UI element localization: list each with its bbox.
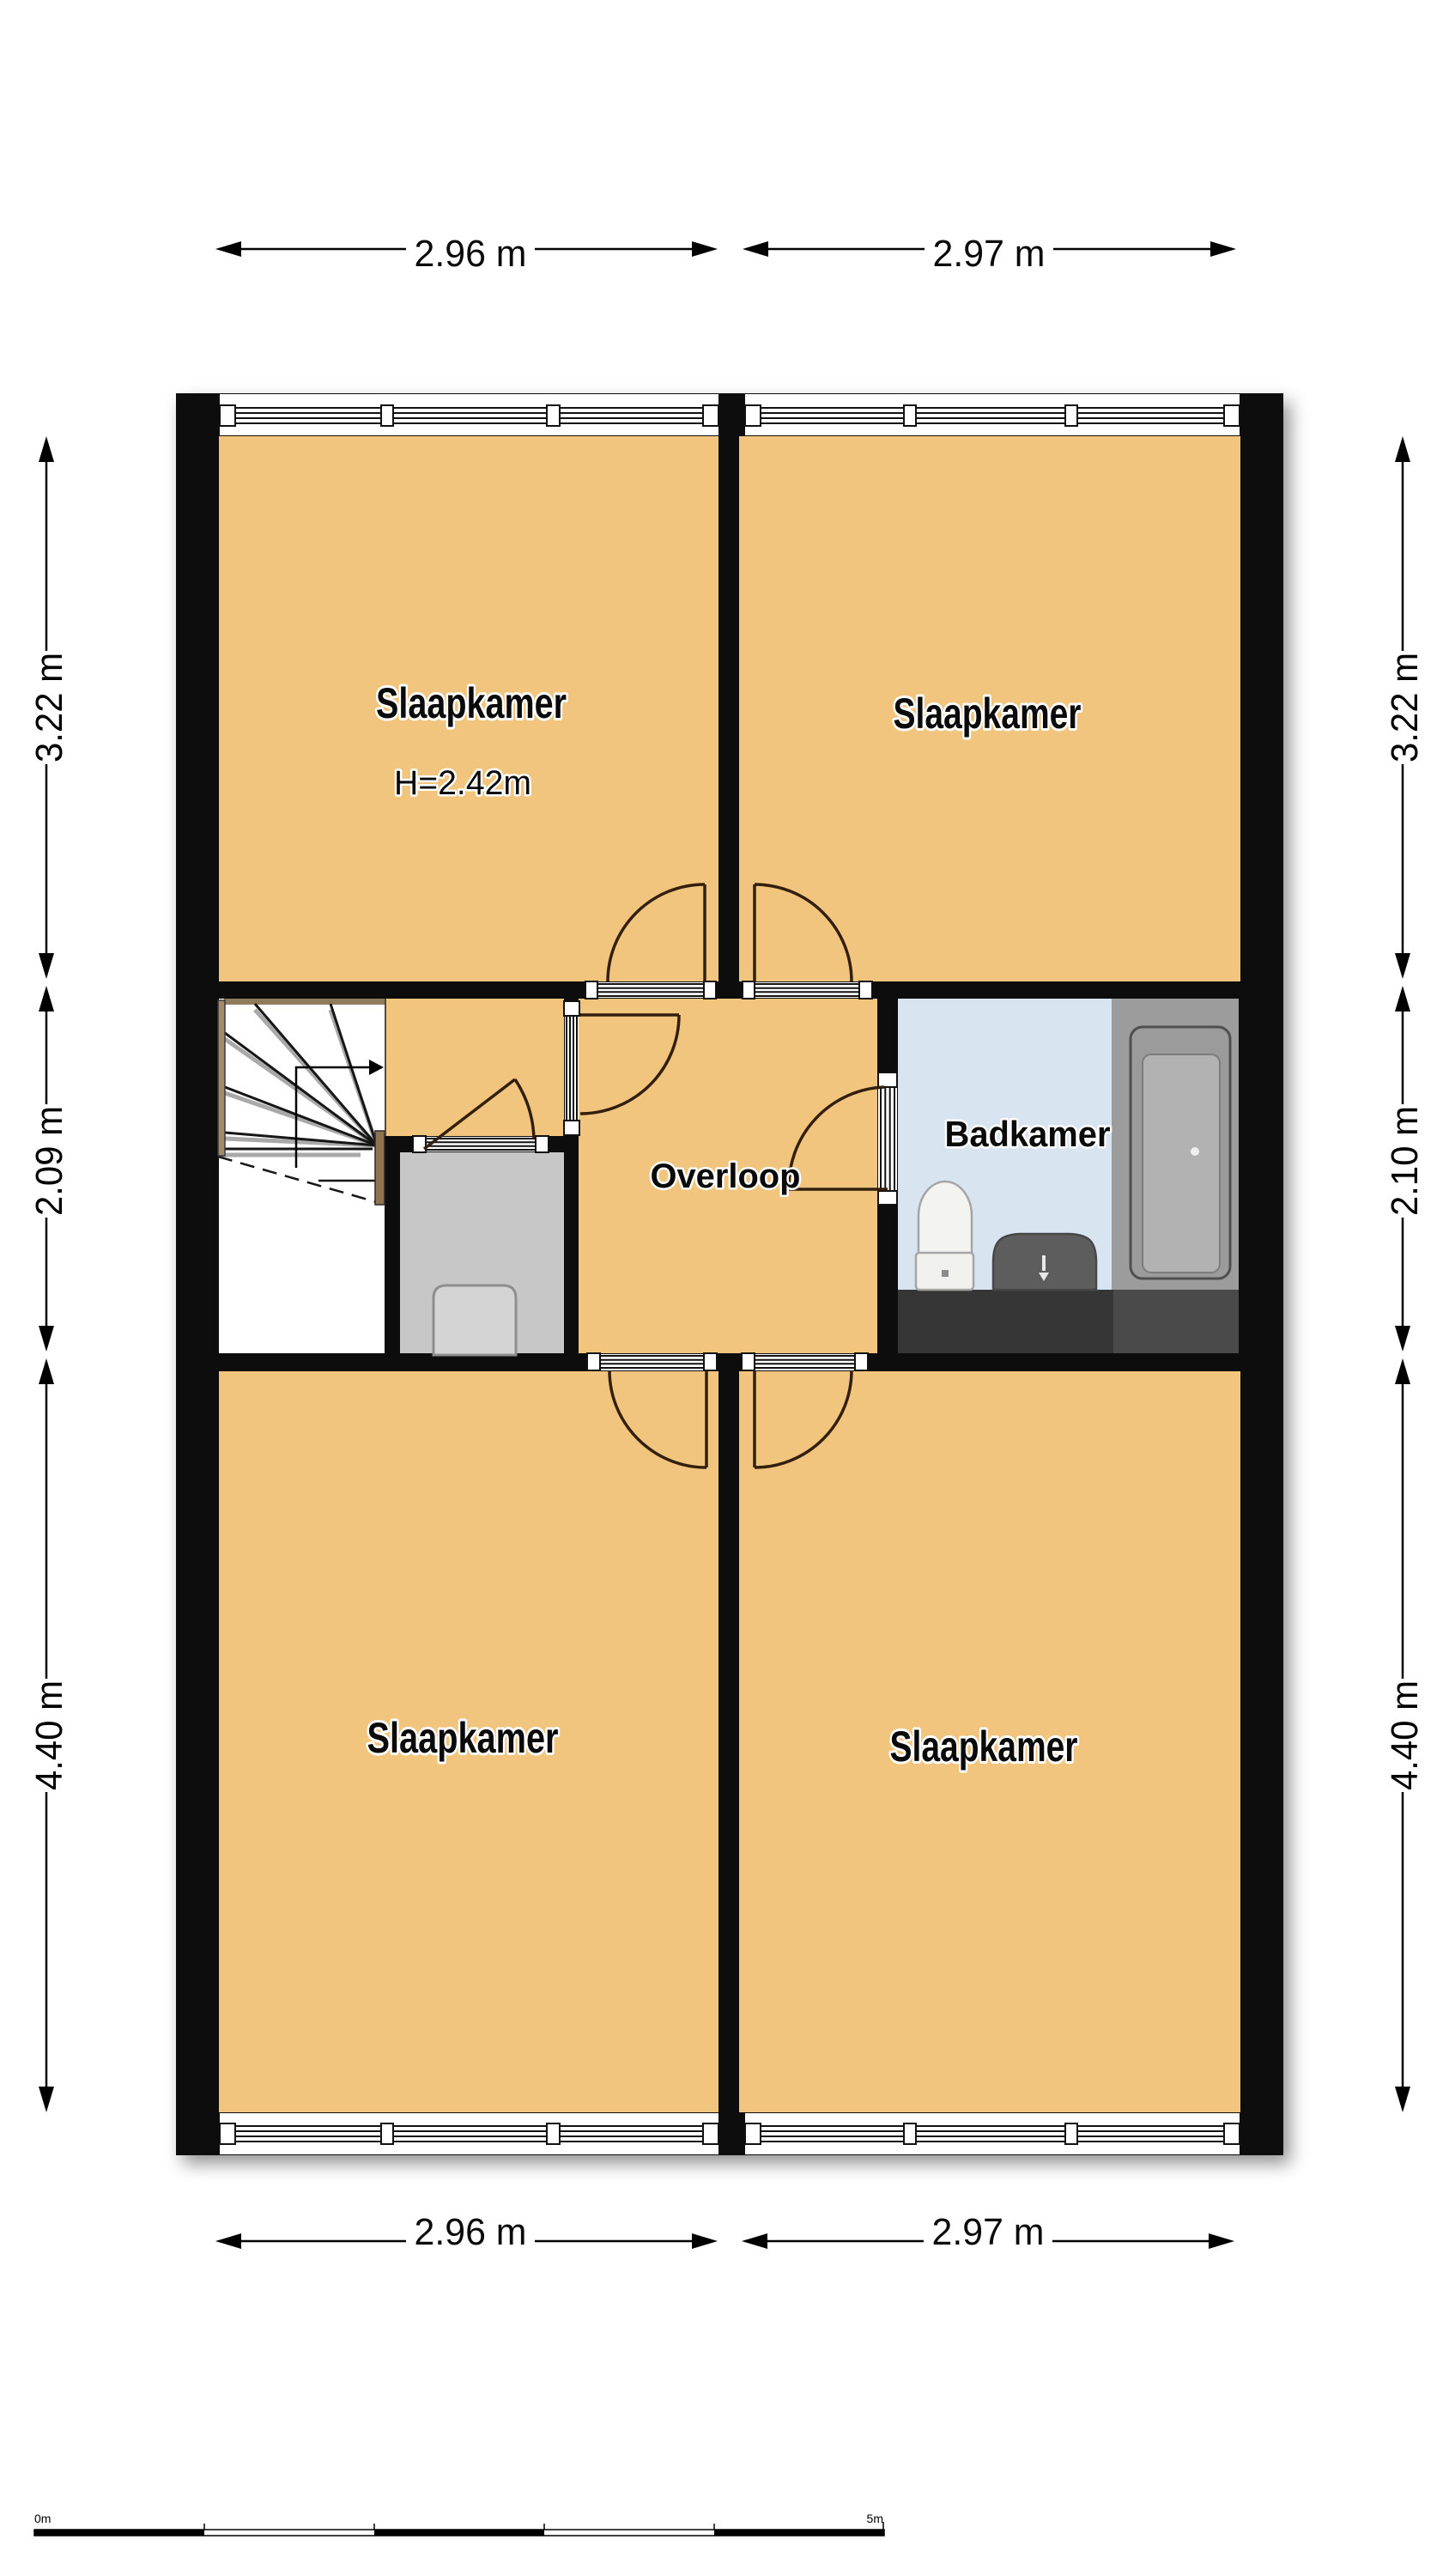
svg-text:2.97 m: 2.97 m — [932, 2211, 1045, 2253]
svg-text:Slaapkamer: Slaapkamer — [376, 679, 567, 727]
svg-text:3.22 m: 3.22 m — [28, 653, 70, 762]
svg-text:2.09 m: 2.09 m — [28, 1106, 70, 1216]
svg-text:5m: 5m — [867, 2512, 883, 2525]
svg-text:Overloop: Overloop — [651, 1157, 801, 1195]
svg-text:3.22 m: 3.22 m — [1384, 653, 1426, 762]
svg-text:4.40 m: 4.40 m — [1384, 1680, 1426, 1790]
svg-text:2.96 m: 2.96 m — [415, 2211, 527, 2253]
svg-text:4.40 m: 4.40 m — [28, 1680, 70, 1790]
svg-text:Badkamer: Badkamer — [945, 1114, 1111, 1154]
svg-text:2.96 m: 2.96 m — [415, 233, 527, 275]
svg-text:2.10 m: 2.10 m — [1384, 1106, 1426, 1216]
svg-text:Slaapkamer: Slaapkamer — [894, 690, 1082, 738]
svg-text:Slaapkamer: Slaapkamer — [367, 1714, 559, 1762]
svg-text:Slaapkamer: Slaapkamer — [890, 1722, 1078, 1771]
svg-text:0m: 0m — [34, 2512, 51, 2525]
svg-text:2.97 m: 2.97 m — [933, 233, 1046, 275]
svg-text:H=2.42m: H=2.42m — [394, 764, 531, 802]
